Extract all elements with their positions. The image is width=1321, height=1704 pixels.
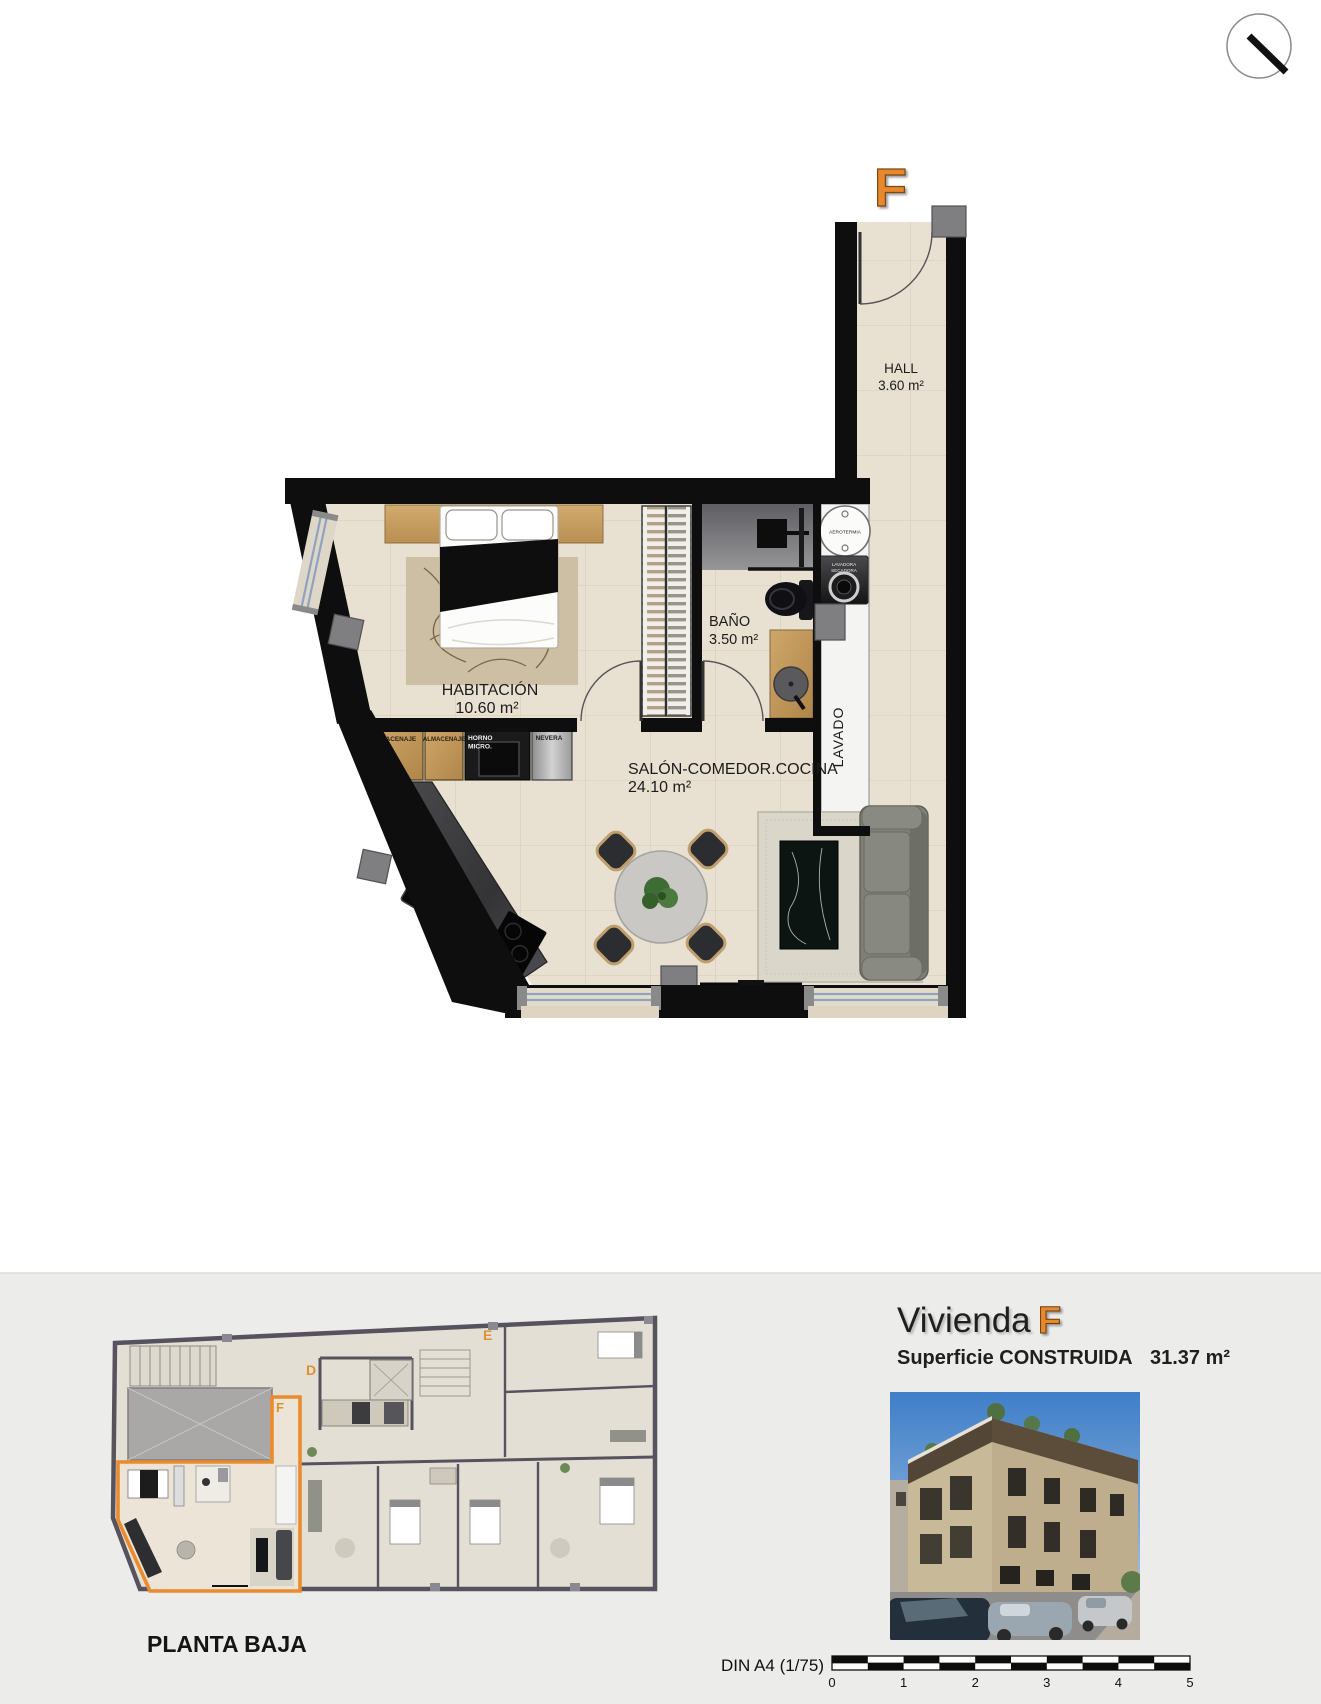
- oven-label: HORNO: [468, 735, 493, 742]
- washer-label-1: LAVADORA: [832, 562, 857, 567]
- lavado-label: LAVADO: [830, 707, 846, 768]
- pillow: [446, 510, 497, 540]
- aerotermia-label: AEROTERMIA: [829, 530, 862, 536]
- sofa: [860, 806, 928, 980]
- micro-label: MICRO.: [468, 744, 492, 751]
- cabinet-label-2: ALMACENAJE: [423, 736, 465, 743]
- window-bottom-right: [804, 986, 948, 1018]
- north-indicator: [1227, 14, 1291, 78]
- scale-label: DIN A4 (1/75): [721, 1656, 824, 1675]
- overview-unit-d-label: D: [306, 1362, 316, 1378]
- bathroom-label: BAÑO: [709, 613, 750, 630]
- fridge-label: NEVERA: [536, 735, 563, 742]
- aerotermia-unit: AEROTERMIA: [820, 506, 870, 556]
- column: [815, 604, 845, 640]
- overview-unit-f-label: F: [276, 1400, 284, 1415]
- coffee-table: [780, 841, 838, 949]
- overview-patio: [128, 1388, 272, 1460]
- summary-title: Vivienda: [897, 1301, 1031, 1340]
- car-dark: [888, 1598, 990, 1642]
- hall-area: 3.60 m²: [878, 378, 924, 393]
- overview-stairs: [130, 1346, 216, 1386]
- overview-unit-e-label: E: [483, 1327, 492, 1343]
- summary-unit-letter: F: [1038, 1300, 1061, 1342]
- bedroom-label: HABITACIÓN: [442, 680, 539, 699]
- overview-title: PLANTA BAJA: [147, 1631, 307, 1657]
- shower: [702, 504, 813, 570]
- plan-unit-letter: F: [874, 158, 907, 218]
- washer-dryer: LAVADORA SECADORA: [820, 556, 868, 604]
- floorplan-drawing: F: [0, 0, 1321, 1704]
- scale-tick-5: 5: [1186, 1675, 1193, 1690]
- surface-label: Superficie CONSTRUIDA: [897, 1347, 1133, 1369]
- window-bottom-left: [517, 986, 661, 1018]
- pillow: [502, 510, 553, 540]
- scale-tick-0: 0: [828, 1675, 835, 1690]
- column: [357, 849, 391, 883]
- main-floor-plan: F: [285, 158, 966, 1018]
- floorplan-sheet: F: [0, 0, 1321, 1704]
- column: [932, 206, 966, 237]
- scale-tick-2: 2: [972, 1675, 979, 1690]
- column: [328, 614, 364, 650]
- laundry-strip: AEROTERMIA LAVADORA SECADORA LAVADO: [820, 504, 870, 828]
- scale-tick-3: 3: [1043, 1675, 1050, 1690]
- scale-tick-4: 4: [1115, 1675, 1122, 1690]
- livingroom-label: SALÓN-COMEDOR.COCINA: [628, 759, 838, 778]
- wardrobe: [642, 506, 691, 716]
- scale-tick-1: 1: [900, 1675, 907, 1690]
- bathroom-area: 3.50 m²: [709, 632, 758, 648]
- building-photo: [888, 1392, 1143, 1643]
- bedroom-area: 10.60 m²: [455, 700, 519, 717]
- bathroom-vanity: [770, 630, 813, 718]
- livingroom-area: 24.10 m²: [628, 779, 692, 796]
- hall-label: HALL: [884, 361, 918, 376]
- surface-value: 31.37 m²: [1150, 1347, 1230, 1369]
